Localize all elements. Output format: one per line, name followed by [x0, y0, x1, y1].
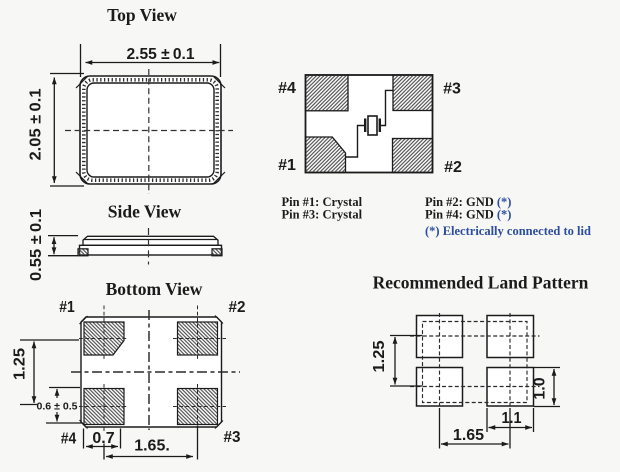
svg-text:Top View: Top View	[107, 5, 177, 25]
svg-text:1.25: 1.25	[371, 340, 388, 372]
svg-text:2.05 ± 0.1: 2.05 ± 0.1	[28, 88, 45, 160]
svg-text:#3: #3	[224, 429, 241, 446]
svg-text:Pin #3: Crystal: Pin #3: Crystal	[282, 208, 363, 222]
svg-text:1.1: 1.1	[502, 410, 522, 427]
svg-text:1.65: 1.65	[453, 427, 484, 444]
svg-text:Recommended Land Pattern: Recommended Land Pattern	[373, 273, 589, 293]
svg-text:#2: #2	[229, 299, 246, 316]
svg-text:Bottom View: Bottom View	[106, 279, 203, 299]
svg-text:1.65.: 1.65.	[134, 438, 170, 455]
svg-text:0.6 ± 0.5: 0.6 ± 0.5	[37, 401, 78, 413]
svg-text:#1: #1	[278, 157, 296, 174]
svg-text:Pin #4: GND (*): Pin #4: GND (*)	[425, 208, 511, 222]
svg-text:#1: #1	[59, 299, 75, 316]
svg-text:Side View: Side View	[108, 202, 182, 222]
svg-text:2.55 ± 0.1: 2.55 ± 0.1	[127, 46, 195, 63]
svg-text:#4: #4	[61, 431, 77, 448]
svg-text:#4: #4	[278, 80, 296, 97]
svg-text:0.55 ± 0.1: 0.55 ± 0.1	[28, 209, 45, 281]
svg-text:#2: #2	[444, 159, 462, 176]
svg-text:1.0: 1.0	[532, 377, 549, 399]
svg-text:1.25: 1.25	[12, 348, 29, 380]
svg-text:#3: #3	[443, 81, 461, 98]
svg-text:(*) Electrically connected to: (*) Electrically connected to lid	[425, 224, 591, 238]
